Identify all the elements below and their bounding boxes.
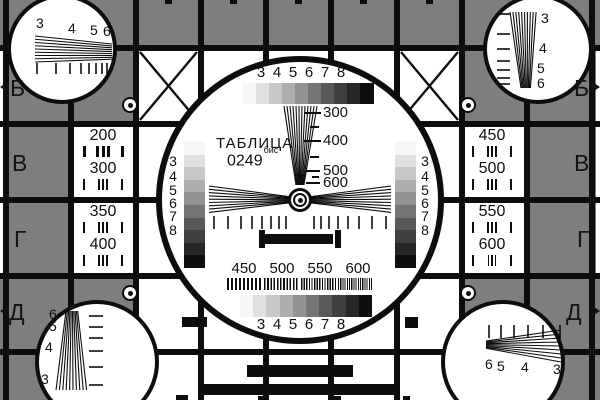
corner-wedge-number: 5 bbox=[90, 23, 98, 37]
tv-test-card: ТАБЛИЦА 0249бис Б Б В В Г Г Д Д 20030035… bbox=[0, 0, 600, 400]
right-arrow-icon bbox=[591, 305, 600, 317]
resolution-dash bbox=[312, 176, 319, 178]
horizontal-wedge-line bbox=[308, 199, 391, 200]
horizontal-wedge-line bbox=[209, 199, 292, 200]
bullseye-icon-dot bbox=[466, 291, 471, 296]
definition-marker-bar bbox=[488, 255, 489, 266]
center-wedge-line bbox=[304, 106, 317, 185]
resolution-dash bbox=[310, 126, 319, 128]
definition-marker-bar bbox=[472, 255, 473, 266]
scale-number-bottom: 4 bbox=[273, 317, 281, 332]
corner-wedge-number: 5 bbox=[537, 61, 545, 75]
grayscale-step-left bbox=[184, 243, 205, 256]
grayscale-step-left bbox=[184, 167, 205, 180]
scale-number-bottom: 3 bbox=[257, 317, 265, 332]
corner-wedge-number: 6 bbox=[485, 357, 493, 371]
grayscale-step-top bbox=[243, 83, 257, 104]
definition-marker-bar bbox=[106, 222, 108, 233]
definition-marker-bar bbox=[472, 179, 474, 190]
scale-number-left: 3 bbox=[169, 154, 177, 168]
definition-value: 350 bbox=[90, 204, 117, 220]
definition-marker-bar bbox=[510, 222, 512, 233]
definition-value: 500 bbox=[479, 161, 506, 177]
grayscale-step-right bbox=[395, 142, 416, 155]
scale-number-left: 7 bbox=[169, 209, 177, 223]
definition-marker-bar bbox=[495, 222, 497, 233]
corner-wedge-number: 3 bbox=[36, 16, 44, 30]
resolution-dash bbox=[304, 140, 321, 142]
grayscale-step-left bbox=[184, 180, 205, 193]
right-arrow-icon bbox=[591, 81, 600, 93]
corner-wedge-line bbox=[35, 57, 112, 58]
resolution-label: 300 bbox=[323, 105, 348, 120]
row-marker-b-left: Б bbox=[10, 77, 25, 100]
scale-number-right: 4 bbox=[421, 169, 429, 183]
corner-wedge-number: 3 bbox=[41, 372, 49, 386]
definition-marker-bar bbox=[510, 146, 512, 157]
bullseye-icon-dot bbox=[128, 291, 133, 296]
reference-bar-cap bbox=[335, 230, 341, 248]
grayscale-step-left bbox=[184, 205, 205, 218]
frequency-burst bbox=[227, 278, 262, 290]
scale-number-bottom: 6 bbox=[305, 317, 313, 332]
definition-marker-bar bbox=[83, 146, 86, 157]
resolution-label: 600 bbox=[323, 175, 348, 190]
definition-marker-bar bbox=[98, 255, 100, 266]
grayscale-step-left bbox=[184, 255, 205, 268]
grayscale-step-top bbox=[347, 83, 361, 104]
corner-wedge-line bbox=[35, 52, 112, 53]
grayscale-step-bottom bbox=[293, 295, 307, 317]
resolution-dash bbox=[310, 156, 319, 158]
scale-number-bottom: 8 bbox=[337, 317, 345, 332]
grayscale-step-bottom bbox=[253, 295, 267, 317]
grayscale-step-right bbox=[395, 243, 416, 256]
burst-label: 600 bbox=[345, 261, 370, 276]
corner-wedge-line bbox=[35, 59, 112, 62]
reference-bar-cap bbox=[259, 230, 265, 248]
corner-wedge-number: 5 bbox=[497, 359, 505, 373]
black-rectangle bbox=[182, 317, 207, 327]
scale-number-right: 8 bbox=[421, 223, 429, 237]
definition-marker-bar bbox=[491, 146, 493, 157]
definition-value: 450 bbox=[479, 128, 506, 144]
corner-wedge-number: 6 bbox=[103, 24, 111, 38]
corner-wedge-line bbox=[73, 311, 74, 390]
scale-number-top: 5 bbox=[289, 65, 297, 80]
definition-marker-bar bbox=[106, 179, 108, 190]
definition-marker-bar bbox=[495, 179, 497, 190]
grayscale-step-bottom bbox=[332, 295, 346, 317]
card-title: ТАБЛИЦА bbox=[216, 136, 293, 151]
corner-wedge-number: 4 bbox=[45, 340, 53, 354]
card-number: 0249бис bbox=[227, 152, 277, 169]
definition-marker-bar bbox=[102, 255, 104, 266]
grayscale-step-left bbox=[184, 218, 205, 231]
grayscale-step-top bbox=[308, 83, 322, 104]
corner-wedge-line bbox=[513, 12, 522, 88]
definition-value: 400 bbox=[90, 237, 117, 253]
resolution-label: 400 bbox=[323, 133, 348, 148]
grayscale-step-right bbox=[395, 205, 416, 218]
grayscale-step-top bbox=[334, 83, 348, 104]
corner-wedge-number: 3 bbox=[553, 362, 561, 376]
frequency-burst bbox=[338, 278, 373, 290]
definition-value: 550 bbox=[479, 204, 506, 220]
definition-marker-bar bbox=[83, 179, 85, 190]
bullseye-icon-dot bbox=[128, 103, 133, 108]
scale-number-top: 7 bbox=[321, 65, 329, 80]
grayscale-step-right bbox=[395, 218, 416, 231]
definition-marker-bar bbox=[83, 255, 85, 266]
grayscale-step-left bbox=[184, 192, 205, 205]
grayscale-step-right bbox=[395, 255, 416, 268]
scale-number-top: 8 bbox=[337, 65, 345, 80]
definition-marker-bar bbox=[495, 255, 496, 266]
scale-number-top: 6 bbox=[305, 65, 313, 80]
scale-number-right: 3 bbox=[421, 154, 429, 168]
definition-marker-bar bbox=[96, 146, 99, 157]
corner-wedge-number: 3 bbox=[541, 11, 549, 25]
definition-marker-bar bbox=[487, 179, 489, 190]
definition-marker-bar bbox=[102, 179, 104, 190]
definition-marker-bar bbox=[102, 222, 104, 233]
corner-wedge-number: 4 bbox=[539, 41, 547, 55]
resolution-dash bbox=[306, 170, 320, 172]
definition-marker-bar bbox=[495, 146, 497, 157]
burst-label: 450 bbox=[231, 261, 256, 276]
row-marker-g-left: Г bbox=[14, 228, 26, 251]
grayscale-step-left bbox=[184, 155, 205, 168]
grayscale-step-bottom bbox=[359, 295, 373, 317]
definition-marker-bar bbox=[98, 222, 100, 233]
definition-marker-bar bbox=[106, 255, 108, 266]
grayscale-step-top bbox=[269, 83, 283, 104]
definition-marker-bar bbox=[487, 146, 489, 157]
bottom-bar-upper bbox=[247, 365, 353, 377]
grayscale-step-bottom bbox=[266, 295, 280, 317]
definition-marker-bar bbox=[102, 146, 105, 157]
bullseye-icon-dot bbox=[466, 103, 471, 108]
left-arrow-icon bbox=[0, 81, 9, 93]
definition-marker-bar bbox=[472, 222, 474, 233]
grayscale-step-top bbox=[295, 83, 309, 104]
burst-label: 500 bbox=[269, 261, 294, 276]
definition-marker-bar bbox=[491, 179, 493, 190]
row-marker-b-right: Б bbox=[574, 77, 589, 100]
grayscale-step-right bbox=[395, 180, 416, 193]
row-marker-v-right: В bbox=[574, 152, 589, 175]
definition-marker-bar bbox=[491, 255, 492, 266]
corner-wedge-number: 4 bbox=[521, 360, 529, 374]
definition-marker-bar bbox=[121, 179, 123, 190]
row-marker-g-right: Г bbox=[577, 228, 589, 251]
grayscale-step-bottom bbox=[280, 295, 294, 317]
definition-marker-bar bbox=[83, 222, 85, 233]
grayscale-step-bottom bbox=[319, 295, 333, 317]
grayscale-step-bottom bbox=[306, 295, 320, 317]
definition-marker-bar bbox=[121, 146, 124, 157]
definition-value: 200 bbox=[90, 128, 117, 144]
grayscale-step-bottom bbox=[240, 295, 254, 317]
definition-marker-bar bbox=[121, 222, 123, 233]
definition-marker-bar bbox=[510, 255, 511, 266]
definition-value: 300 bbox=[90, 161, 117, 177]
definition-marker-bar bbox=[487, 222, 489, 233]
reference-bar bbox=[263, 234, 333, 244]
grayscale-step-top bbox=[256, 83, 270, 104]
grayscale-step-right bbox=[395, 230, 416, 243]
resolution-dash bbox=[304, 112, 321, 114]
definition-marker-bar bbox=[472, 146, 474, 157]
corner-wedge-number: 5 bbox=[49, 319, 57, 333]
grayscale-step-top bbox=[321, 83, 335, 104]
grayscale-step-left bbox=[184, 230, 205, 243]
black-square bbox=[405, 317, 418, 328]
grayscale-step-bottom bbox=[346, 295, 360, 317]
frequency-burst bbox=[264, 278, 299, 290]
row-marker-v-left: В bbox=[12, 152, 27, 175]
row-marker-d-right: Д bbox=[566, 301, 582, 324]
definition-marker-bar bbox=[510, 179, 512, 190]
definition-marker-bar bbox=[491, 222, 493, 233]
grayscale-step-top bbox=[360, 83, 374, 104]
burst-label: 550 bbox=[307, 261, 332, 276]
left-arrow-icon bbox=[0, 305, 9, 317]
scale-number-left: 4 bbox=[169, 169, 177, 183]
bottom-bar-lower bbox=[203, 384, 398, 395]
frequency-burst bbox=[301, 278, 336, 290]
scale-number-bottom: 5 bbox=[289, 317, 297, 332]
center-wedge-line bbox=[299, 106, 300, 185]
grayscale-step-top bbox=[282, 83, 296, 104]
card-number-suffix: бис bbox=[264, 145, 279, 155]
definition-value: 600 bbox=[479, 237, 506, 253]
scale-number-bottom: 7 bbox=[321, 317, 329, 332]
card-number-value: 0249 bbox=[227, 152, 263, 169]
center-bullseye-icon-ring bbox=[293, 193, 307, 207]
grayscale-step-left bbox=[184, 142, 205, 155]
grayscale-step-right bbox=[395, 155, 416, 168]
definition-marker-bar bbox=[98, 179, 100, 190]
scale-number-top: 3 bbox=[257, 65, 265, 80]
definition-marker-bar bbox=[107, 146, 110, 157]
grayscale-step-right bbox=[395, 167, 416, 180]
scale-number-top: 4 bbox=[273, 65, 281, 80]
corner-wedge-number: 4 bbox=[68, 21, 76, 35]
grayscale-step-right bbox=[395, 192, 416, 205]
corner-wedge-number: 6 bbox=[537, 76, 545, 90]
definition-marker-bar bbox=[121, 255, 123, 266]
scale-number-right: 7 bbox=[421, 209, 429, 223]
row-marker-d-left: Д bbox=[9, 301, 25, 324]
resolution-dash bbox=[306, 182, 320, 184]
scale-number-left: 8 bbox=[169, 223, 177, 237]
